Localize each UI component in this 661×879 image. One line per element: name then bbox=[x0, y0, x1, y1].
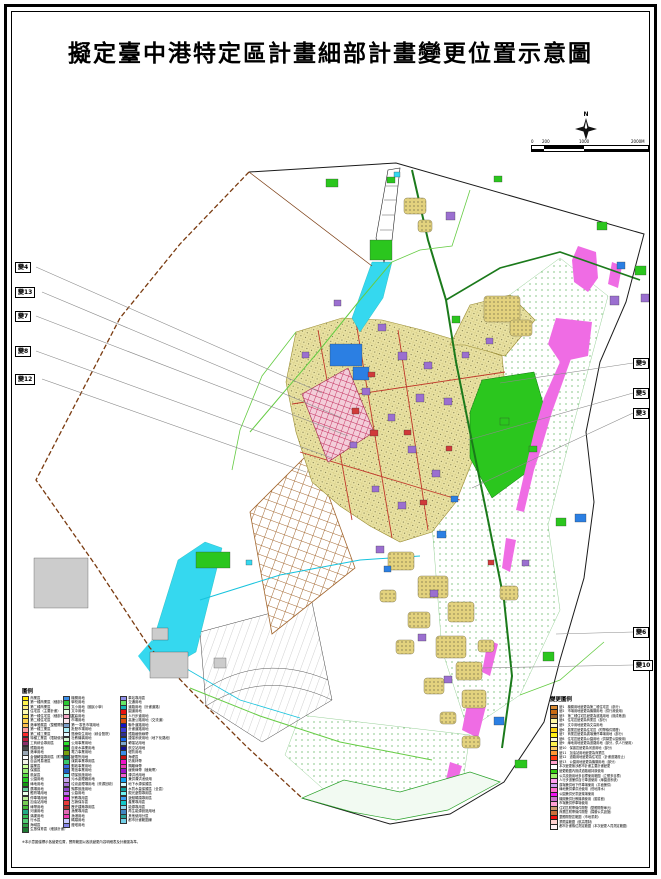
parcel-blue bbox=[330, 344, 362, 366]
parcel-green bbox=[597, 222, 607, 230]
map-sheet: 擬定臺中港特定區計畫細部計畫變更位置示意圖 N 0 200 1000 2000M bbox=[0, 0, 661, 879]
change-label: 變更範圍內既成道路維持原使用 bbox=[559, 770, 604, 773]
parcel-purple bbox=[462, 352, 469, 358]
parcel-green bbox=[387, 177, 395, 183]
parcel-purple bbox=[418, 634, 426, 641]
legend-item: 生態保育區（細部計畫） bbox=[22, 828, 78, 833]
village-cluster bbox=[484, 296, 520, 322]
parcel-purple bbox=[398, 352, 407, 360]
legend-label: 轉運站用地 bbox=[128, 742, 145, 745]
legend-label: 燈塔用地 bbox=[71, 824, 85, 827]
legend-swatch bbox=[63, 823, 70, 828]
parcel-purple bbox=[378, 324, 386, 331]
parcel-gray bbox=[34, 558, 88, 608]
parcel-cyan bbox=[394, 172, 400, 177]
parcel-green bbox=[326, 179, 338, 187]
parcel-blue bbox=[617, 262, 625, 269]
village-cluster bbox=[510, 320, 532, 336]
scale-tick-2000: 2000M bbox=[631, 139, 645, 144]
legend-item: 都市計畫範圍線 bbox=[120, 819, 172, 824]
parcel-purple bbox=[424, 362, 432, 369]
change-marker-變13: 變13 bbox=[15, 287, 35, 298]
parcel-purple bbox=[486, 338, 493, 344]
parcel-gray bbox=[152, 628, 168, 640]
change-marker-變12: 變12 bbox=[15, 374, 35, 385]
village-cluster bbox=[396, 640, 414, 654]
parcel-purple bbox=[430, 590, 438, 597]
village-cluster bbox=[448, 602, 474, 622]
parcel-gray bbox=[150, 652, 188, 678]
change-label: 市場兼供停車場使用 bbox=[559, 802, 588, 805]
scale-tick-1000: 1000 bbox=[579, 139, 589, 144]
change-label: 變12 道路用地變更為住宅區（計畫道路廢止） bbox=[559, 756, 627, 759]
change-marker-變5: 變5 bbox=[633, 388, 649, 399]
page-title: 擬定臺中港特定區計畫細部計畫變更位置示意圖 bbox=[0, 34, 661, 68]
parcel-green bbox=[556, 518, 566, 526]
change-swatch bbox=[550, 824, 558, 830]
legend-label: 垃圾處理場用地（資源回收） bbox=[71, 783, 115, 786]
parcel-purple bbox=[334, 300, 341, 306]
legend-label: 學校用地 bbox=[71, 701, 85, 704]
change-label: 變7 商業區變更為廣場兼停車場用地（部分） bbox=[559, 733, 625, 736]
village-cluster bbox=[500, 586, 518, 600]
legend-label: 觀光遊憩專用區 bbox=[128, 792, 152, 795]
legend-swatch bbox=[120, 818, 127, 823]
village-cluster bbox=[462, 736, 480, 748]
legend-label: 交通用地 bbox=[128, 701, 142, 704]
scale-tick-0: 0 bbox=[531, 139, 534, 144]
parcel-purple bbox=[446, 212, 455, 220]
change-marker-變3: 變3 bbox=[633, 408, 649, 419]
parcel-green bbox=[370, 240, 392, 260]
parcel-red bbox=[488, 560, 494, 565]
parcel-green bbox=[529, 446, 537, 452]
north-arrow-icon bbox=[574, 118, 598, 140]
parcel-red bbox=[446, 446, 452, 451]
legend-column-3: 車站專用區交通用地道路用地（計畫道路）園道用地人行步道用地高速公路用地（交流道）… bbox=[120, 696, 172, 823]
village-cluster bbox=[380, 590, 396, 602]
change-label: 人行步道兼供自行車道使用（綠園道系統） bbox=[559, 779, 620, 782]
parcel-purple bbox=[362, 388, 370, 395]
change-marker-變4: 變4 bbox=[15, 262, 31, 273]
parcel-cyan bbox=[246, 560, 252, 565]
parcel-blue bbox=[384, 566, 391, 572]
parcel-blue bbox=[353, 367, 369, 380]
parcel-purple bbox=[641, 294, 649, 302]
parcel-purple bbox=[610, 296, 619, 305]
scale-tick-200: 200 bbox=[542, 139, 550, 144]
parcel-green bbox=[494, 176, 502, 182]
leader-line-變12 bbox=[42, 379, 306, 472]
parcel-green bbox=[543, 652, 554, 661]
change-marker-變9: 變9 bbox=[633, 358, 649, 369]
parcel-blue bbox=[575, 514, 586, 522]
legend-label: 生態保育區（細部計畫） bbox=[30, 828, 67, 831]
parcel-purple bbox=[432, 470, 440, 477]
legend-label: 都市計畫範圍線 bbox=[128, 819, 152, 822]
parcel-blue bbox=[451, 496, 458, 502]
parcel-green bbox=[452, 316, 460, 323]
parcel-purple bbox=[350, 442, 357, 448]
village-cluster bbox=[462, 690, 486, 708]
legend-swatch bbox=[22, 827, 29, 832]
changes-rows: 變1 機關用地變更為第二種住宅區（部分）變2 市場用地變更為機關用地（供行政使用… bbox=[550, 705, 658, 829]
parcel-purple bbox=[444, 676, 452, 683]
parcel-purple bbox=[388, 414, 395, 421]
village-cluster bbox=[418, 220, 432, 232]
change-label: 變5 文中用地變更為文高用地 bbox=[559, 724, 602, 727]
legend-label: 公用事業用地 bbox=[71, 742, 91, 745]
change-label: 變10 保護區變更為河道用地（部分） bbox=[559, 747, 614, 750]
village-cluster bbox=[436, 636, 466, 658]
village-cluster bbox=[478, 640, 494, 652]
parcel-green bbox=[500, 418, 509, 425]
change-label: 都市計畫樁位測定範圍（本次變更人員測定範圍） bbox=[559, 825, 629, 828]
parcel-red bbox=[404, 430, 411, 435]
village-cluster bbox=[388, 552, 414, 570]
scale-bar: 0 200 1000 2000M bbox=[531, 139, 649, 155]
parcel-purple bbox=[408, 446, 416, 453]
legend-title: 圖例 bbox=[22, 687, 252, 695]
parcel-green bbox=[515, 760, 527, 768]
parcel-purple bbox=[376, 546, 384, 553]
leader-line-變4 bbox=[36, 267, 322, 393]
legend-footnote: ※本示意圖僅標示各變更位置，實際範圍以各該變更內容明細表及計畫圖為準。 bbox=[22, 839, 140, 844]
leader-line-變8 bbox=[36, 351, 332, 458]
parcel-red bbox=[420, 500, 427, 505]
legend-label: 綠地用地 bbox=[30, 783, 44, 786]
parcel-purple bbox=[522, 560, 529, 566]
parcel-red bbox=[368, 372, 375, 377]
parcel-purple bbox=[444, 398, 452, 405]
change-label: 變2 市場用地變更為機關用地（供行政使用） bbox=[559, 710, 625, 713]
parcel-purple bbox=[398, 502, 406, 509]
parcel-red bbox=[370, 430, 378, 436]
legend-column-2: 機關用地學校用地文小用地（國民小學）文中用地文高用地市場用地第一‧零售市場用地批… bbox=[63, 696, 115, 828]
parcel-green bbox=[196, 552, 230, 568]
legend: 圖例 商業區第一種商業區（細部計畫）第二種商業區住宅區（主要計畫）第一種住宅區（… bbox=[22, 687, 252, 697]
legend-item: 燈塔用地 bbox=[63, 823, 115, 828]
parcel-purple bbox=[416, 394, 424, 402]
change-marker-變7: 變7 bbox=[15, 311, 31, 322]
parcel-green bbox=[635, 266, 646, 275]
village-cluster bbox=[408, 612, 430, 628]
legend-label: 公墓用地 bbox=[71, 792, 85, 795]
scale-bar-graphic bbox=[531, 145, 649, 152]
village-cluster bbox=[424, 678, 444, 694]
change-marker-變10: 變10 bbox=[633, 660, 653, 671]
parcel-blue bbox=[437, 531, 446, 538]
village-cluster bbox=[404, 198, 426, 214]
change-marker-變8: 變8 bbox=[15, 346, 31, 357]
change-item: 都市計畫樁位測定範圍（本次變更人員測定範圍） bbox=[550, 824, 658, 829]
changes-legend-title: 變更圖例 bbox=[550, 695, 658, 703]
village-cluster bbox=[456, 662, 482, 680]
legend-label: 工商綜合專用區 bbox=[30, 742, 54, 745]
change-label: 公園兼供兒童遊樂場使用 bbox=[559, 793, 594, 796]
parcel-purple bbox=[302, 352, 309, 358]
parcel-purple bbox=[372, 486, 379, 492]
change-label: 整體開發區範圍（市地重劃） bbox=[559, 816, 600, 819]
legend-label: 地下水源保護區 bbox=[128, 783, 152, 786]
parcel-blue bbox=[494, 717, 504, 725]
change-marker-變6: 變6 bbox=[633, 627, 649, 638]
legend-label: 體育場用地 bbox=[30, 792, 47, 795]
village-cluster bbox=[440, 712, 456, 724]
changes-legend: 變更圖例 變1 機關用地變更為第二種住宅區（部分）變2 市場用地變更為機關用地（… bbox=[550, 695, 658, 829]
boundary-connector-road bbox=[249, 172, 372, 266]
parcel-red bbox=[352, 408, 359, 414]
parcel-gray bbox=[214, 658, 226, 668]
